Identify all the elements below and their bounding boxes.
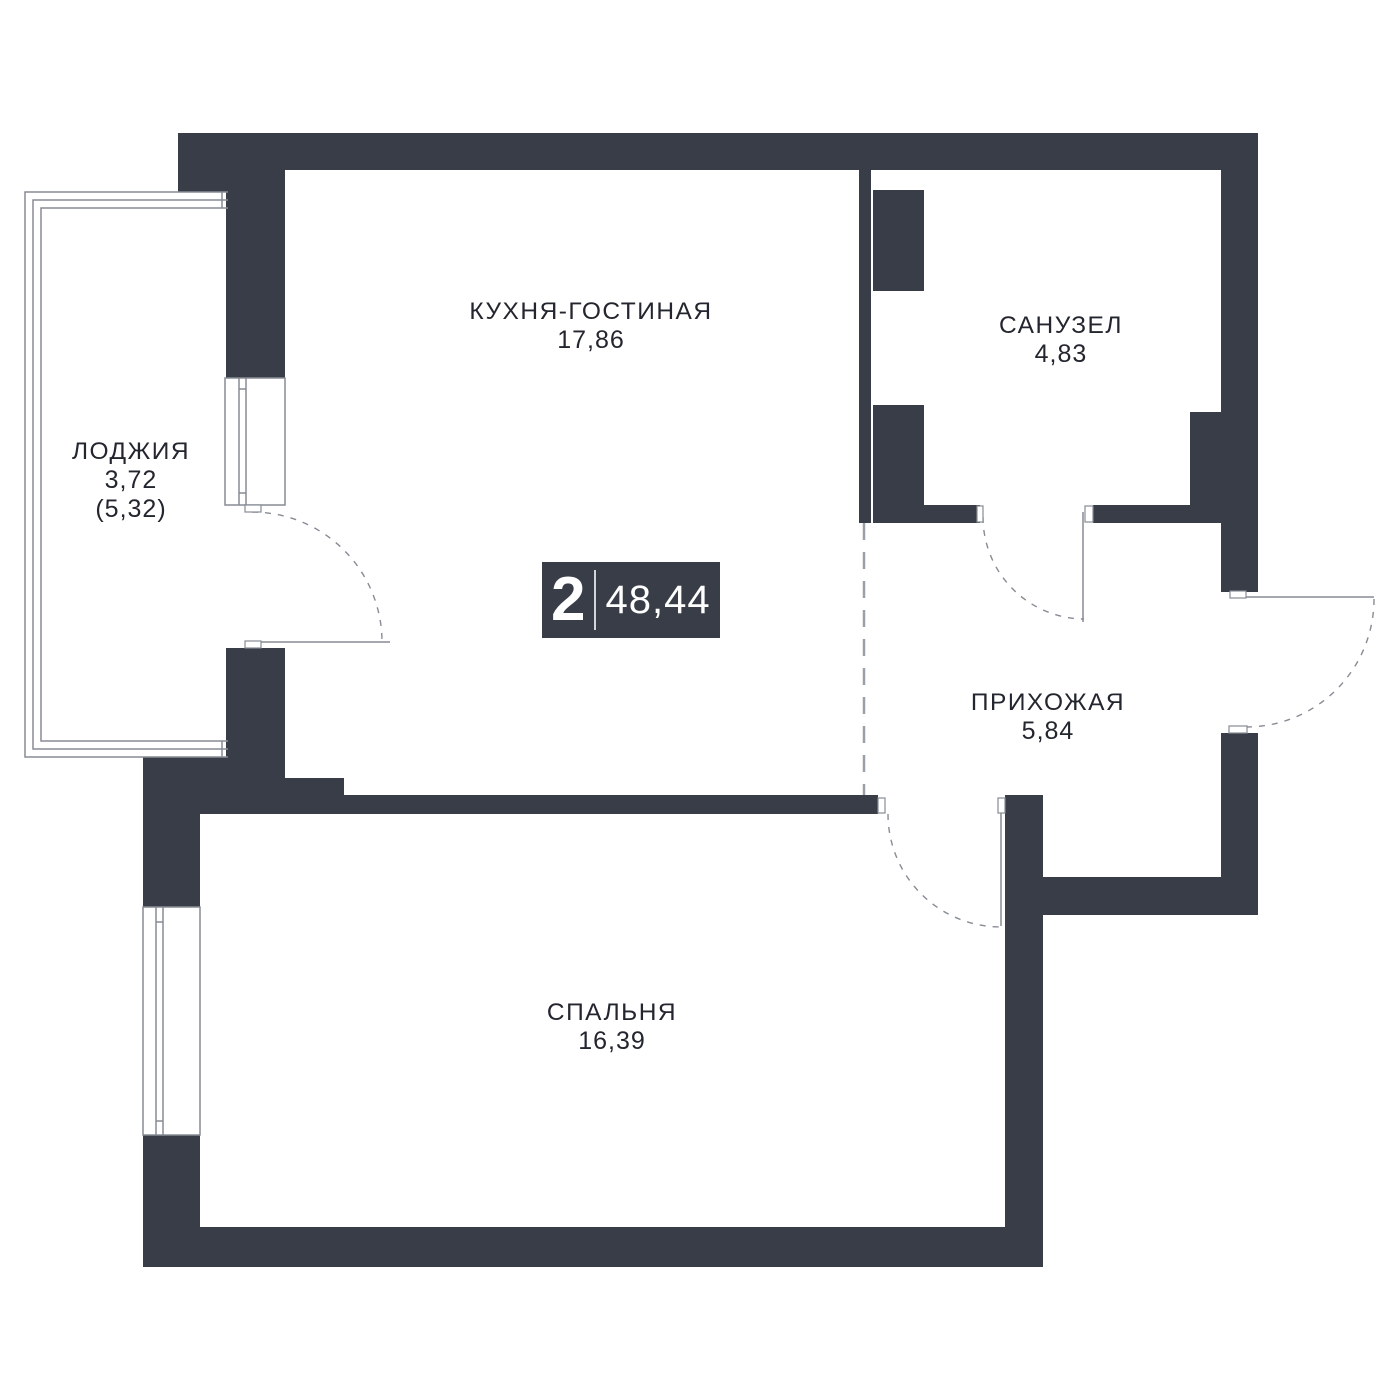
door-jamb <box>245 641 261 648</box>
wall-outer-right-lower <box>1221 733 1258 915</box>
wall-outer-left-a <box>143 814 200 907</box>
door-jambs <box>245 505 1247 813</box>
room-area: 16,39 <box>547 1028 677 1055</box>
wall-top <box>178 133 1258 170</box>
door-jamb <box>1230 591 1246 598</box>
room-name: СПАЛЬНЯ <box>547 1000 677 1026</box>
rooms-count: 2 <box>551 562 585 638</box>
room-name: САНУЗЕЛ <box>999 313 1123 339</box>
balcony-window <box>225 378 285 505</box>
floor-plan-svg <box>0 0 1400 1400</box>
door-jamb <box>245 505 261 512</box>
entrance-door-arc <box>1246 599 1374 727</box>
bedroom-door-arc <box>888 814 1001 927</box>
room-area: 4,83 <box>999 341 1123 368</box>
window-box <box>143 907 200 1135</box>
room-label-hallway: ПРИХОЖАЯ 5,84 <box>971 690 1125 745</box>
wall-left-mid <box>226 648 285 757</box>
doors <box>245 505 1374 927</box>
door-jamb <box>1229 726 1247 733</box>
room-label-bathroom: САНУЗЕЛ 4,83 <box>999 313 1123 368</box>
room-name: КУХНЯ-ГОСТИНАЯ <box>469 299 712 325</box>
room-area: 3,72 <box>72 467 190 494</box>
window-box <box>225 378 285 505</box>
badge-divider <box>594 570 596 630</box>
wall-outer-right-upper <box>1221 170 1258 592</box>
room-area-full: (5,32) <box>72 496 190 523</box>
wall-kitchen-bedroom <box>344 795 878 814</box>
floor-plan: КУХНЯ-ГОСТИНАЯ 17,86 САНУЗЕЛ 4,83 ЛОДЖИЯ… <box>0 0 1400 1400</box>
room-label-loggia: ЛОДЖИЯ 3,72 (5,32) <box>72 439 190 523</box>
door-jamb <box>998 798 1005 813</box>
wall-shaft-upper <box>873 190 924 291</box>
wall-shaft-lower <box>873 405 924 506</box>
wall-kitchen-divider <box>859 170 871 523</box>
apartment-summary-badge: 2 48,44 <box>542 562 720 638</box>
bathroom-door-arc <box>983 517 1084 619</box>
bedroom-window <box>143 907 200 1135</box>
room-area: 5,84 <box>971 718 1125 745</box>
wall-bottom <box>143 1227 1043 1267</box>
wall-bathroom-bottom-left <box>873 505 980 523</box>
door-jamb <box>1085 506 1093 522</box>
door-jamb <box>977 506 983 522</box>
room-label-bedroom: СПАЛЬНЯ 16,39 <box>547 1000 677 1055</box>
wall-left-upper <box>226 170 285 378</box>
total-area: 48,44 <box>605 578 710 623</box>
room-label-kitchen: КУХНЯ-ГОСТИНАЯ 17,86 <box>469 299 712 354</box>
room-name: ПРИХОЖАЯ <box>971 690 1125 716</box>
room-area: 17,86 <box>469 327 712 354</box>
door-jamb <box>878 798 885 813</box>
wall-bathroom-bottom-right <box>1093 505 1221 523</box>
wall-bedroom-right <box>1005 795 1043 1267</box>
wall-block-lower-left <box>143 757 285 814</box>
balcony-door-arc <box>252 512 382 642</box>
wall-step <box>285 778 344 814</box>
room-name: ЛОДЖИЯ <box>72 439 190 465</box>
